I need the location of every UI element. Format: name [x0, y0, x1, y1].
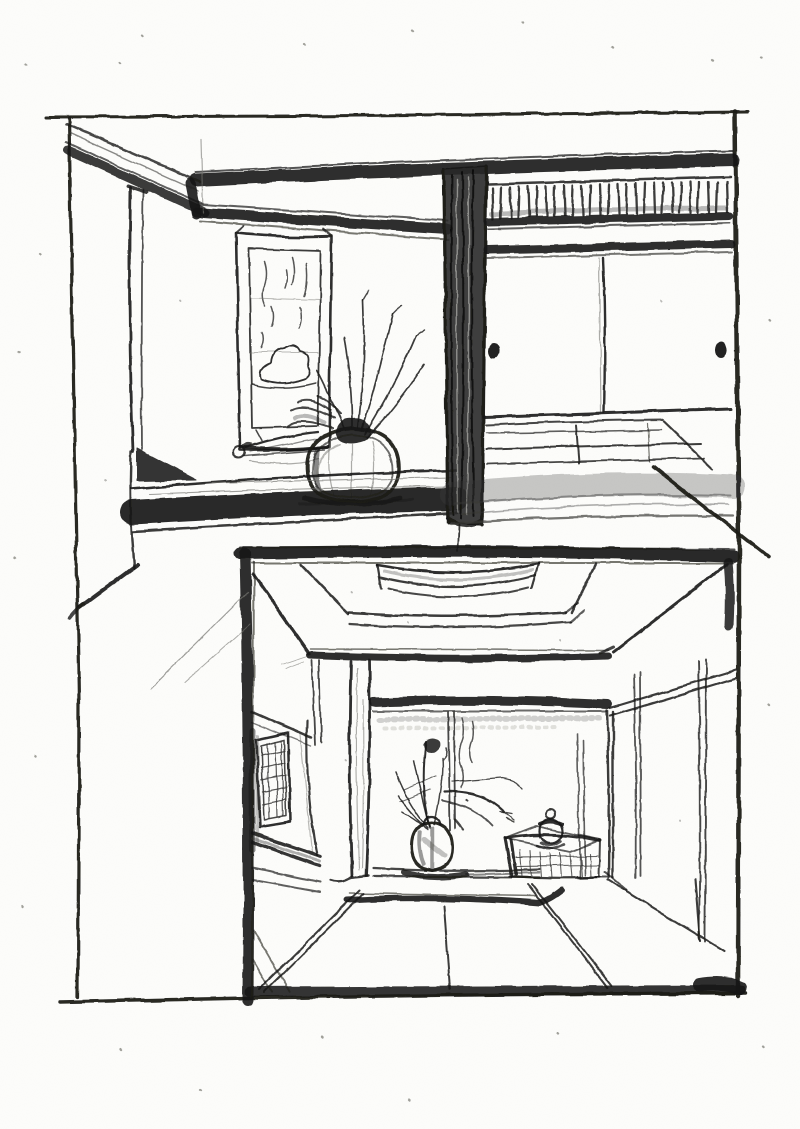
center-post	[443, 166, 487, 525]
pencil-sketch-figure: Pencil sketch: two perspective views of …	[0, 0, 800, 1129]
shelf-dark-band	[132, 499, 457, 512]
opening-left-band	[245, 553, 249, 1000]
lintel-stipple-1	[380, 718, 600, 720]
floor-shade-band	[452, 485, 733, 494]
floor-bottom-band	[250, 990, 741, 992]
floor-bottom-corner	[700, 984, 740, 988]
table-right-edge	[599, 841, 600, 877]
alcove-lintel-band	[373, 700, 608, 704]
far-wall-top-band	[310, 655, 608, 658]
post-body	[443, 166, 487, 524]
opening-right-band	[728, 562, 730, 625]
lamp-cord	[458, 524, 459, 552]
far-wall-top-edge	[310, 649, 608, 650]
door-pull-left	[489, 344, 499, 358]
door-pull-right	[716, 342, 727, 358]
opening-top-band	[240, 552, 733, 556]
sketch-canvas	[0, 0, 800, 1129]
window-side-scribble	[257, 736, 258, 842]
